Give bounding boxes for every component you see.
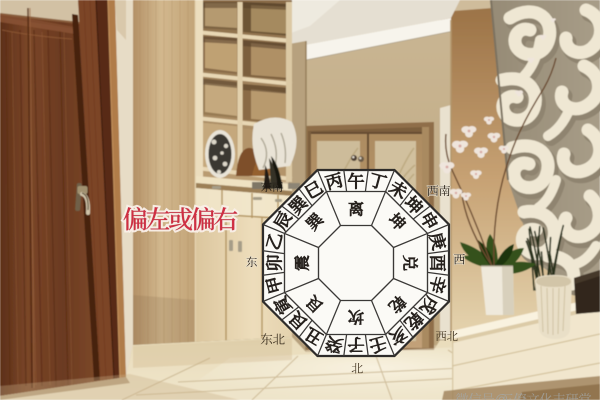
- svg-text:@: @: [495, 392, 508, 400]
